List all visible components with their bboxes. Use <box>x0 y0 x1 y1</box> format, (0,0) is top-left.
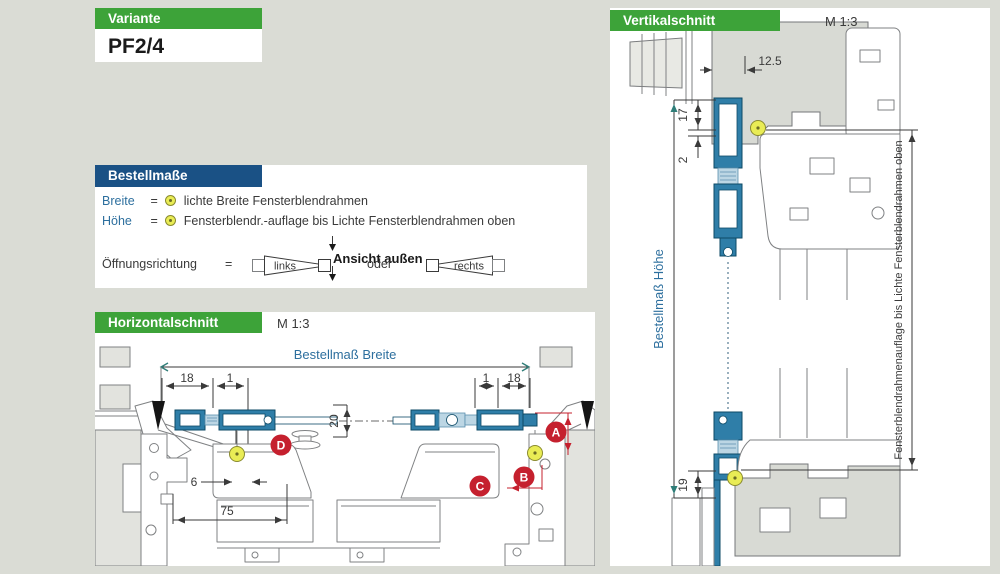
variante-value: PF2/4 <box>108 35 164 59</box>
catalog-page: Variante PF2/4 Bestellmaße Breite = lich… <box>0 0 1000 574</box>
breite-label: Breite <box>102 194 147 208</box>
arrow-down-icon <box>328 236 337 251</box>
breite-dimension: Bestellmaß Breite <box>161 347 529 408</box>
horizontalschnitt-scale: M 1:3 <box>277 316 310 331</box>
vertikalschnitt-header: Vertikalschnitt <box>610 10 780 31</box>
badge-c: C <box>476 480 485 494</box>
hoehe-row: Höhe = Fensterblendr.-auflage bis Lichte… <box>102 214 515 228</box>
wall-bracket <box>630 22 692 104</box>
vertikalschnitt-panel: 12.5 17 2 Bestellmaß Höhe <box>610 8 990 566</box>
dim-18-left: 18 <box>180 371 194 385</box>
hoehe-dim-label: Bestellmaß Höhe <box>651 249 666 349</box>
dim-19: 19 <box>676 478 690 492</box>
links-label: links <box>274 261 297 273</box>
horizontalschnitt-header: Horizontalschnitt <box>95 312 262 333</box>
breite-row: Breite = lichte Breite Fensterblendrahme… <box>102 194 368 208</box>
variante-header: Variante <box>95 8 262 29</box>
sill-profiles <box>217 500 440 562</box>
opening-left-icon: links <box>252 255 336 276</box>
hoehe-desc: Fensterblendr.-auflage bis Lichte Fenste… <box>184 214 515 228</box>
suction-cup <box>290 431 320 450</box>
dim-6: 6 <box>191 475 198 489</box>
breite-dim-label: Bestellmaß Breite <box>294 347 397 362</box>
bottom-frame-profiles <box>672 440 900 566</box>
vertikalschnitt-scale: M 1:3 <box>825 14 858 29</box>
bestellmasse-panel: Bestellmaße Breite = lichte Breite Fenst… <box>95 165 587 288</box>
badge-a: A <box>552 426 561 440</box>
badge-d: D <box>277 439 286 453</box>
dim-1-left: 1 <box>227 371 234 385</box>
dim-12-5: 12.5 <box>758 54 782 68</box>
dim-20: 20 <box>327 414 341 428</box>
badge-b: B <box>520 471 529 485</box>
oeffnungsrichtung-equals: = <box>225 257 232 271</box>
oder-label: oder <box>367 257 392 271</box>
oeffnungsrichtung-row: Öffnungsrichtung = links oder rechts <box>102 255 580 277</box>
dim-2: 2 <box>676 156 690 163</box>
vertical-section-drawing: 12.5 17 2 Bestellmaß Höhe <box>610 8 990 566</box>
dim-18-right: 18 <box>507 371 521 385</box>
oeffnungsrichtung-label: Öffnungsrichtung <box>102 257 197 271</box>
dimension-17: 17 <box>674 100 716 130</box>
hoehe-equals: = <box>150 214 157 228</box>
horizontal-section-drawing: Bestellmaß Breite 18 1 1 18 <box>95 334 595 566</box>
breite-desc: lichte Breite Fensterblendrahmen <box>184 194 368 208</box>
dim-17: 17 <box>676 108 690 122</box>
dimension-2: 2 <box>676 136 716 163</box>
side-reference-label: Fensterblendrahmenauflage bis Lichte Fen… <box>893 140 905 459</box>
glass-strip-right <box>393 417 411 424</box>
dim-75: 75 <box>220 504 234 518</box>
opening-right-icon: rechts <box>421 255 505 276</box>
breite-equals: = <box>150 194 157 208</box>
yellow-marker-icon <box>165 195 176 206</box>
yellow-marker-icon <box>165 215 176 226</box>
hoehe-label: Höhe <box>102 214 147 228</box>
horizontalschnitt-panel: Horizontalschnitt M 1:3 Bestellmaß Breit… <box>95 312 595 566</box>
glazing-lines <box>780 249 847 438</box>
dim-1-right: 1 <box>483 371 490 385</box>
variante-panel: Variante PF2/4 <box>95 8 262 62</box>
rechts-label: rechts <box>454 261 484 273</box>
bestellmasse-header: Bestellmaße <box>95 165 262 187</box>
sliding-leaf-profiles <box>175 410 537 430</box>
